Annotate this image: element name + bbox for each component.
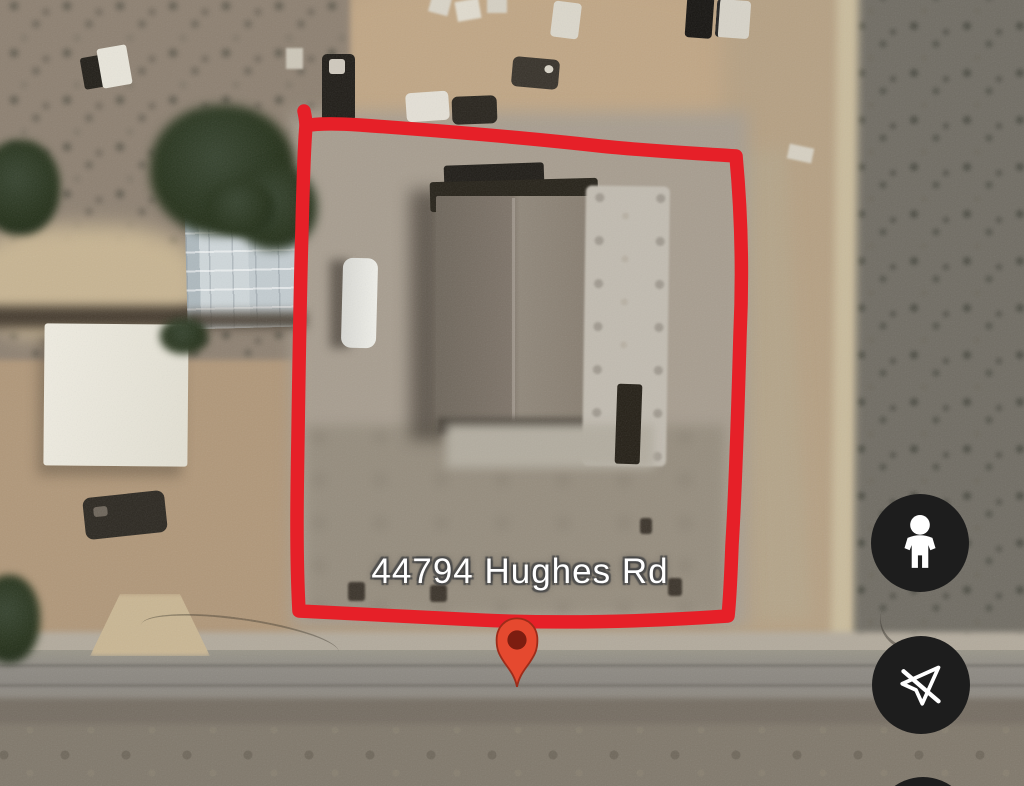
shrub-ne-of-white-building [160, 318, 208, 354]
vehicle-dark-truck-southwest [82, 490, 168, 540]
map-pin[interactable] [493, 612, 541, 692]
vehicle-white-trailer-north [550, 0, 582, 39]
map-pin-body [497, 618, 538, 686]
vehicle-black-truck-northeast [685, 0, 715, 39]
car-glint [544, 65, 554, 74]
vehicle-white-truck-northwest [79, 44, 134, 96]
address-label: 44794 Hughes Rd [290, 552, 750, 592]
vehicle-dark-car-2 [511, 56, 560, 90]
map-pin-dot [507, 630, 526, 649]
pegman-icon [894, 514, 946, 572]
truck-glint [93, 506, 108, 517]
navigation-disabled-button[interactable] [872, 636, 970, 734]
debris-white-3 [487, 0, 507, 13]
main-building-roof [436, 196, 594, 428]
street-view-button[interactable] [871, 494, 969, 592]
vehicle-white-truck-northeast [715, 0, 752, 39]
dark-trailer-by-pad [615, 384, 643, 465]
vehicle-white-van [405, 91, 450, 123]
main-building-ridge-highlight [512, 198, 515, 424]
ground-mark [640, 518, 652, 534]
debris-white-northwest [286, 48, 303, 69]
map-canvas[interactable]: 44794 Hughes Rd [0, 0, 1024, 786]
truck-roof-glint [329, 59, 345, 74]
navigation-off-icon [891, 655, 951, 715]
vehicle-dark-car [452, 95, 498, 125]
white-trailer [341, 258, 378, 349]
tree-lobe-over-barn [205, 180, 275, 235]
vehicle-dark-truck-north [322, 54, 355, 122]
road-lower-band [0, 698, 1024, 724]
